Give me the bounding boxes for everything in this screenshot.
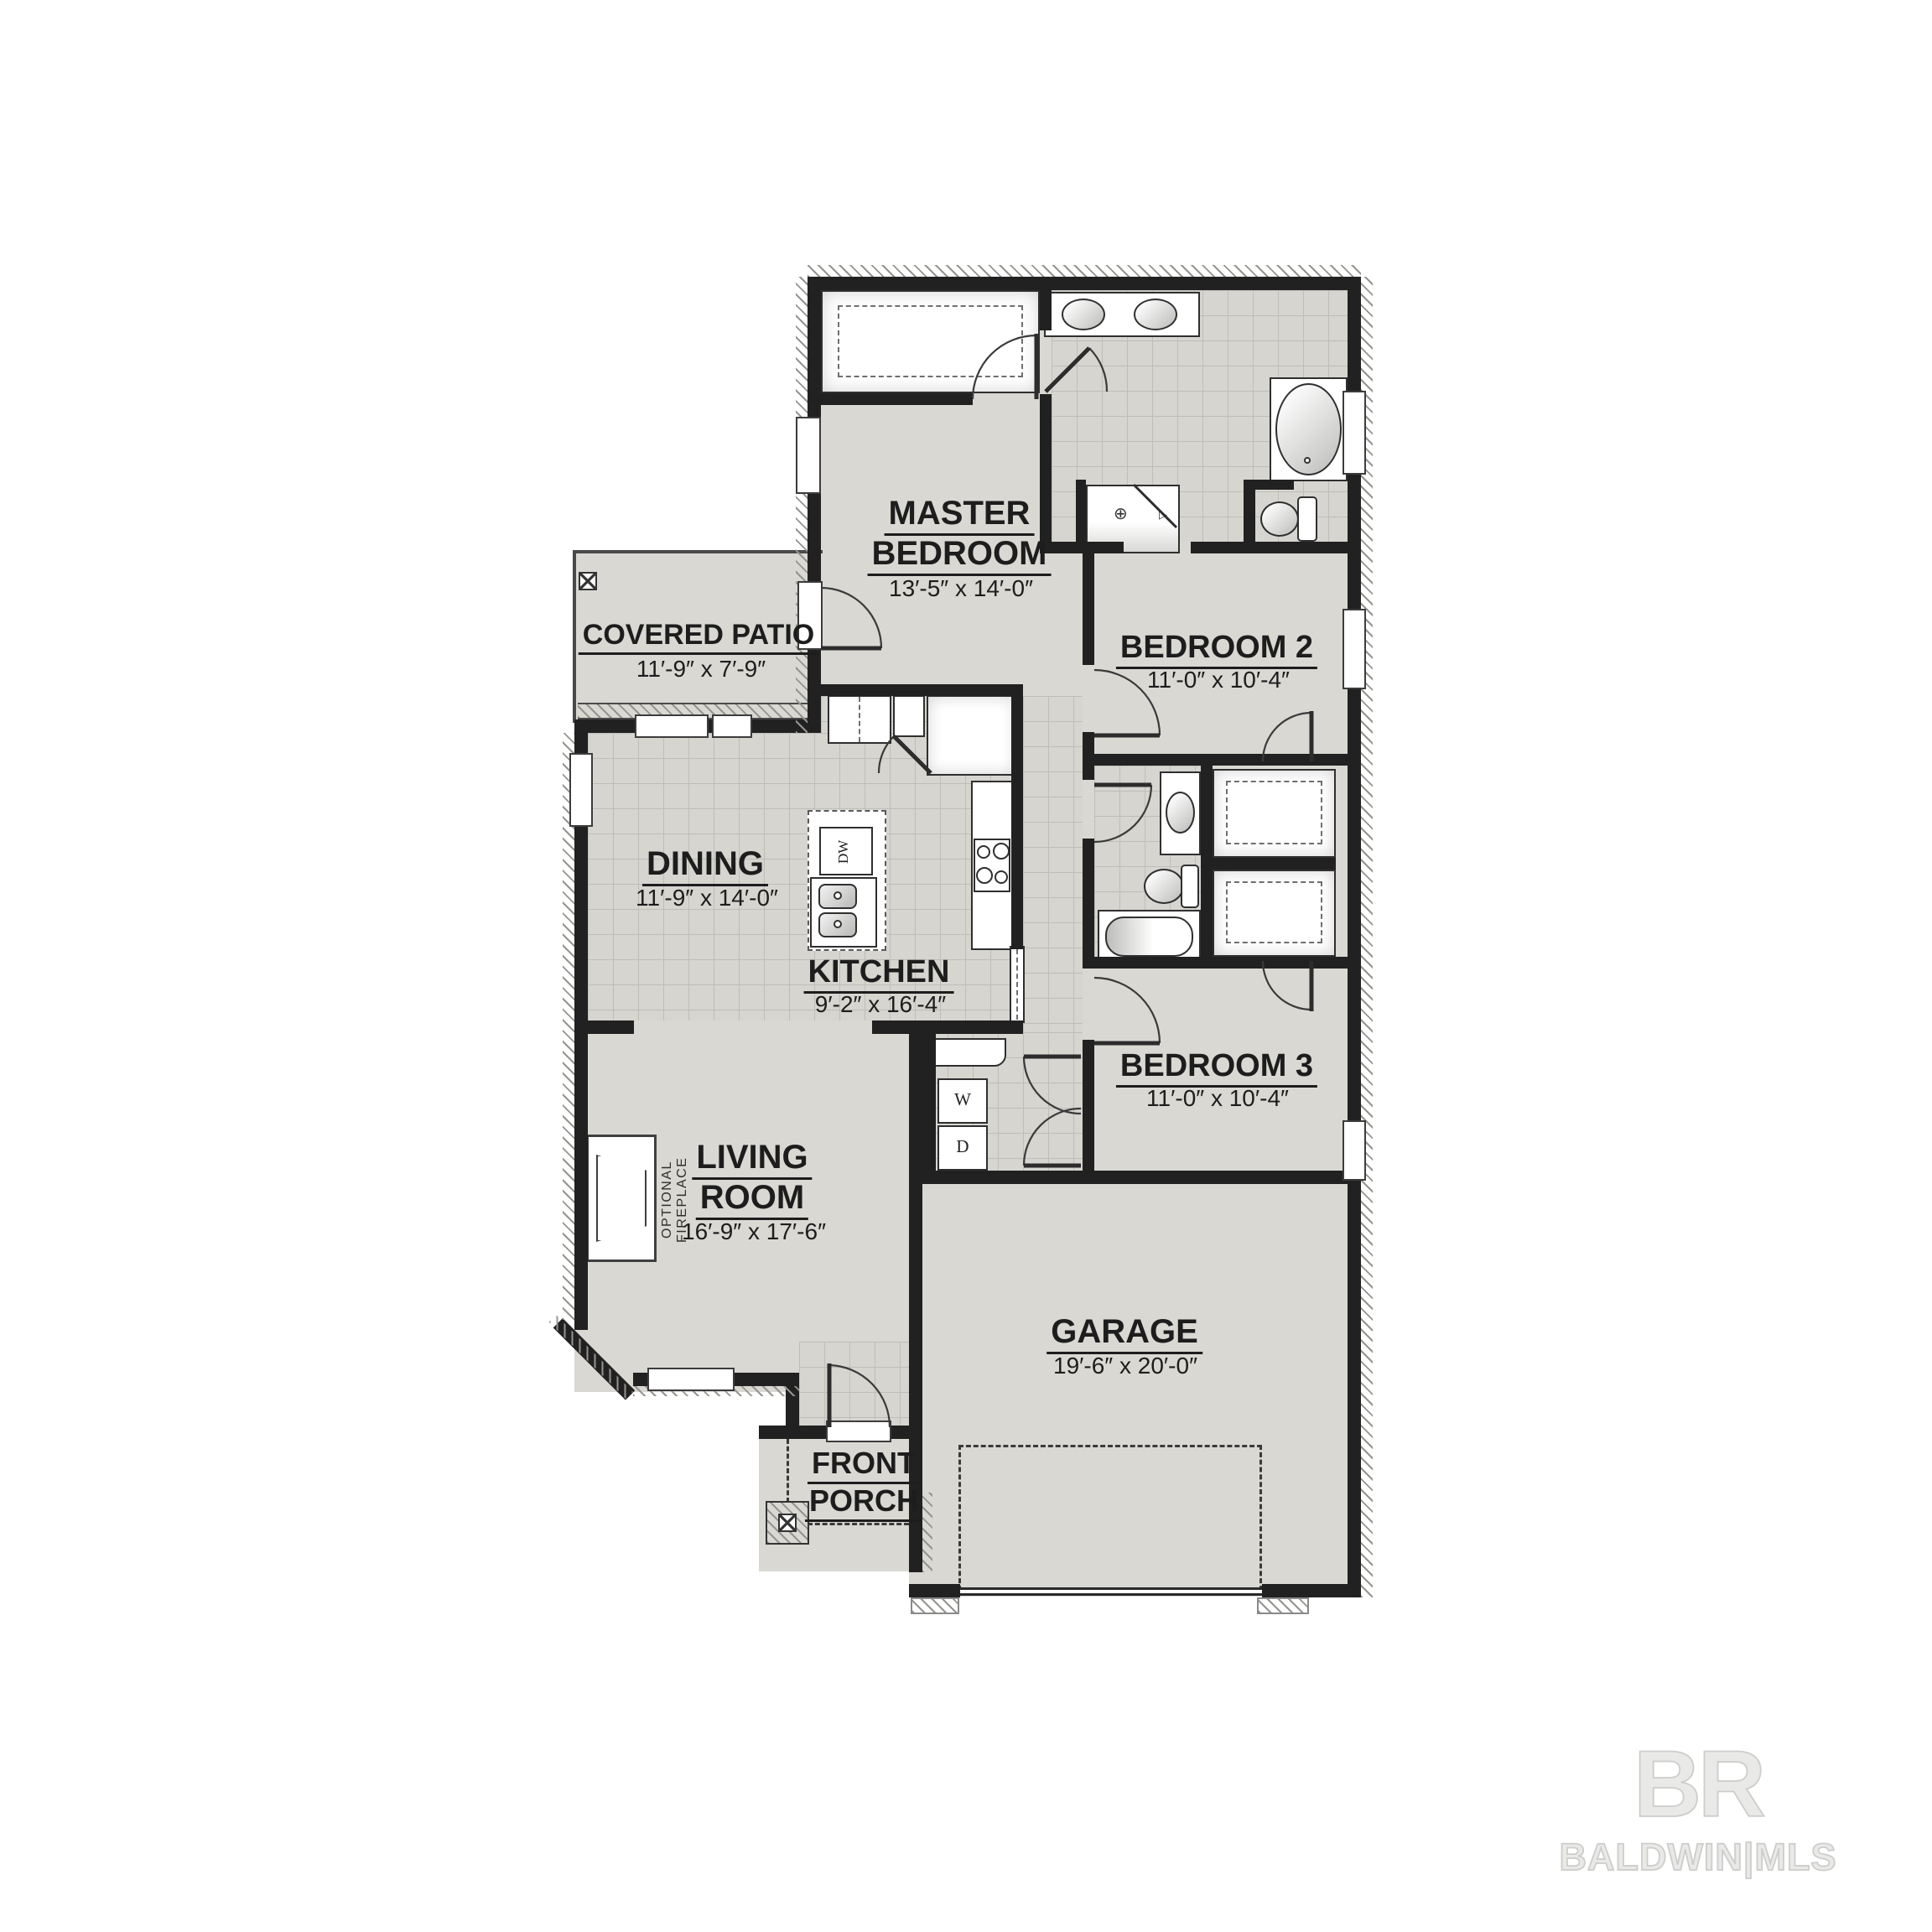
room-name: GARAGE [1046, 1315, 1202, 1354]
room-name: BEDROOM 3 [1116, 1050, 1317, 1088]
room-name: FRONT [808, 1448, 920, 1484]
room-name: DINING [642, 847, 768, 886]
label-master-line2: BEDROOM [868, 537, 1052, 576]
baldwin-caption: BALDWIN|MLS [1547, 1838, 1849, 1876]
label-covered-patio: COVERED PATIO [579, 621, 818, 655]
optional-fireplace-note: OPTIONAL FIREPLACE [660, 1137, 678, 1263]
dims-bedroom3: 11′-0″ x 10′-4″ [1146, 1087, 1289, 1110]
dims-kitchen: 9′-2″ x 16′-4″ [815, 993, 946, 1016]
label-living-line2: ROOM [696, 1181, 808, 1220]
dims-bedroom2: 11′-0″ x 10′-4″ [1147, 668, 1290, 692]
room-name: ROOM [696, 1181, 808, 1220]
baldwin-mls-watermark: BR BALDWIN|MLS [1547, 1737, 1849, 1876]
label-master-line1: MASTER [885, 496, 1035, 536]
door-swing-overlay [0, 0, 1932, 1932]
dims-living: 16′-9″ x 17′-6″ [682, 1220, 826, 1244]
dims-covered-patio: 11′-9″ x 7′-9″ [636, 657, 766, 681]
room-name: LIVING [692, 1140, 812, 1180]
label-bedroom3: BEDROOM 3 [1116, 1050, 1317, 1088]
label-dining: DINING [642, 847, 768, 886]
baldwin-logo-icon: BR [1547, 1737, 1849, 1831]
label-garage: GARAGE [1046, 1315, 1202, 1354]
room-name: BEDROOM 2 [1116, 631, 1317, 669]
room-name: MASTER [885, 496, 1035, 536]
floor-plan-canvas: ⊕ ▷ DW W D [0, 0, 1932, 1932]
dims-master: 13′-5″ x 14′-0″ [889, 577, 1033, 600]
room-name: BEDROOM [868, 537, 1052, 576]
label-porch-line2: PORCH [805, 1486, 922, 1522]
label-bedroom2: BEDROOM 2 [1116, 631, 1317, 669]
label-porch-line1: FRONT [808, 1448, 920, 1484]
room-name: KITCHEN [804, 956, 954, 994]
label-living-line1: LIVING [692, 1140, 812, 1180]
label-kitchen: KITCHEN [804, 956, 954, 994]
shower-glass-door [1134, 485, 1176, 527]
dims-garage: 19′-6″ x 20′-0″ [1053, 1354, 1197, 1378]
room-name: COVERED PATIO [579, 621, 818, 655]
dims-dining: 11′-9″ x 14′-0″ [636, 886, 778, 910]
room-name: PORCH [805, 1486, 922, 1522]
